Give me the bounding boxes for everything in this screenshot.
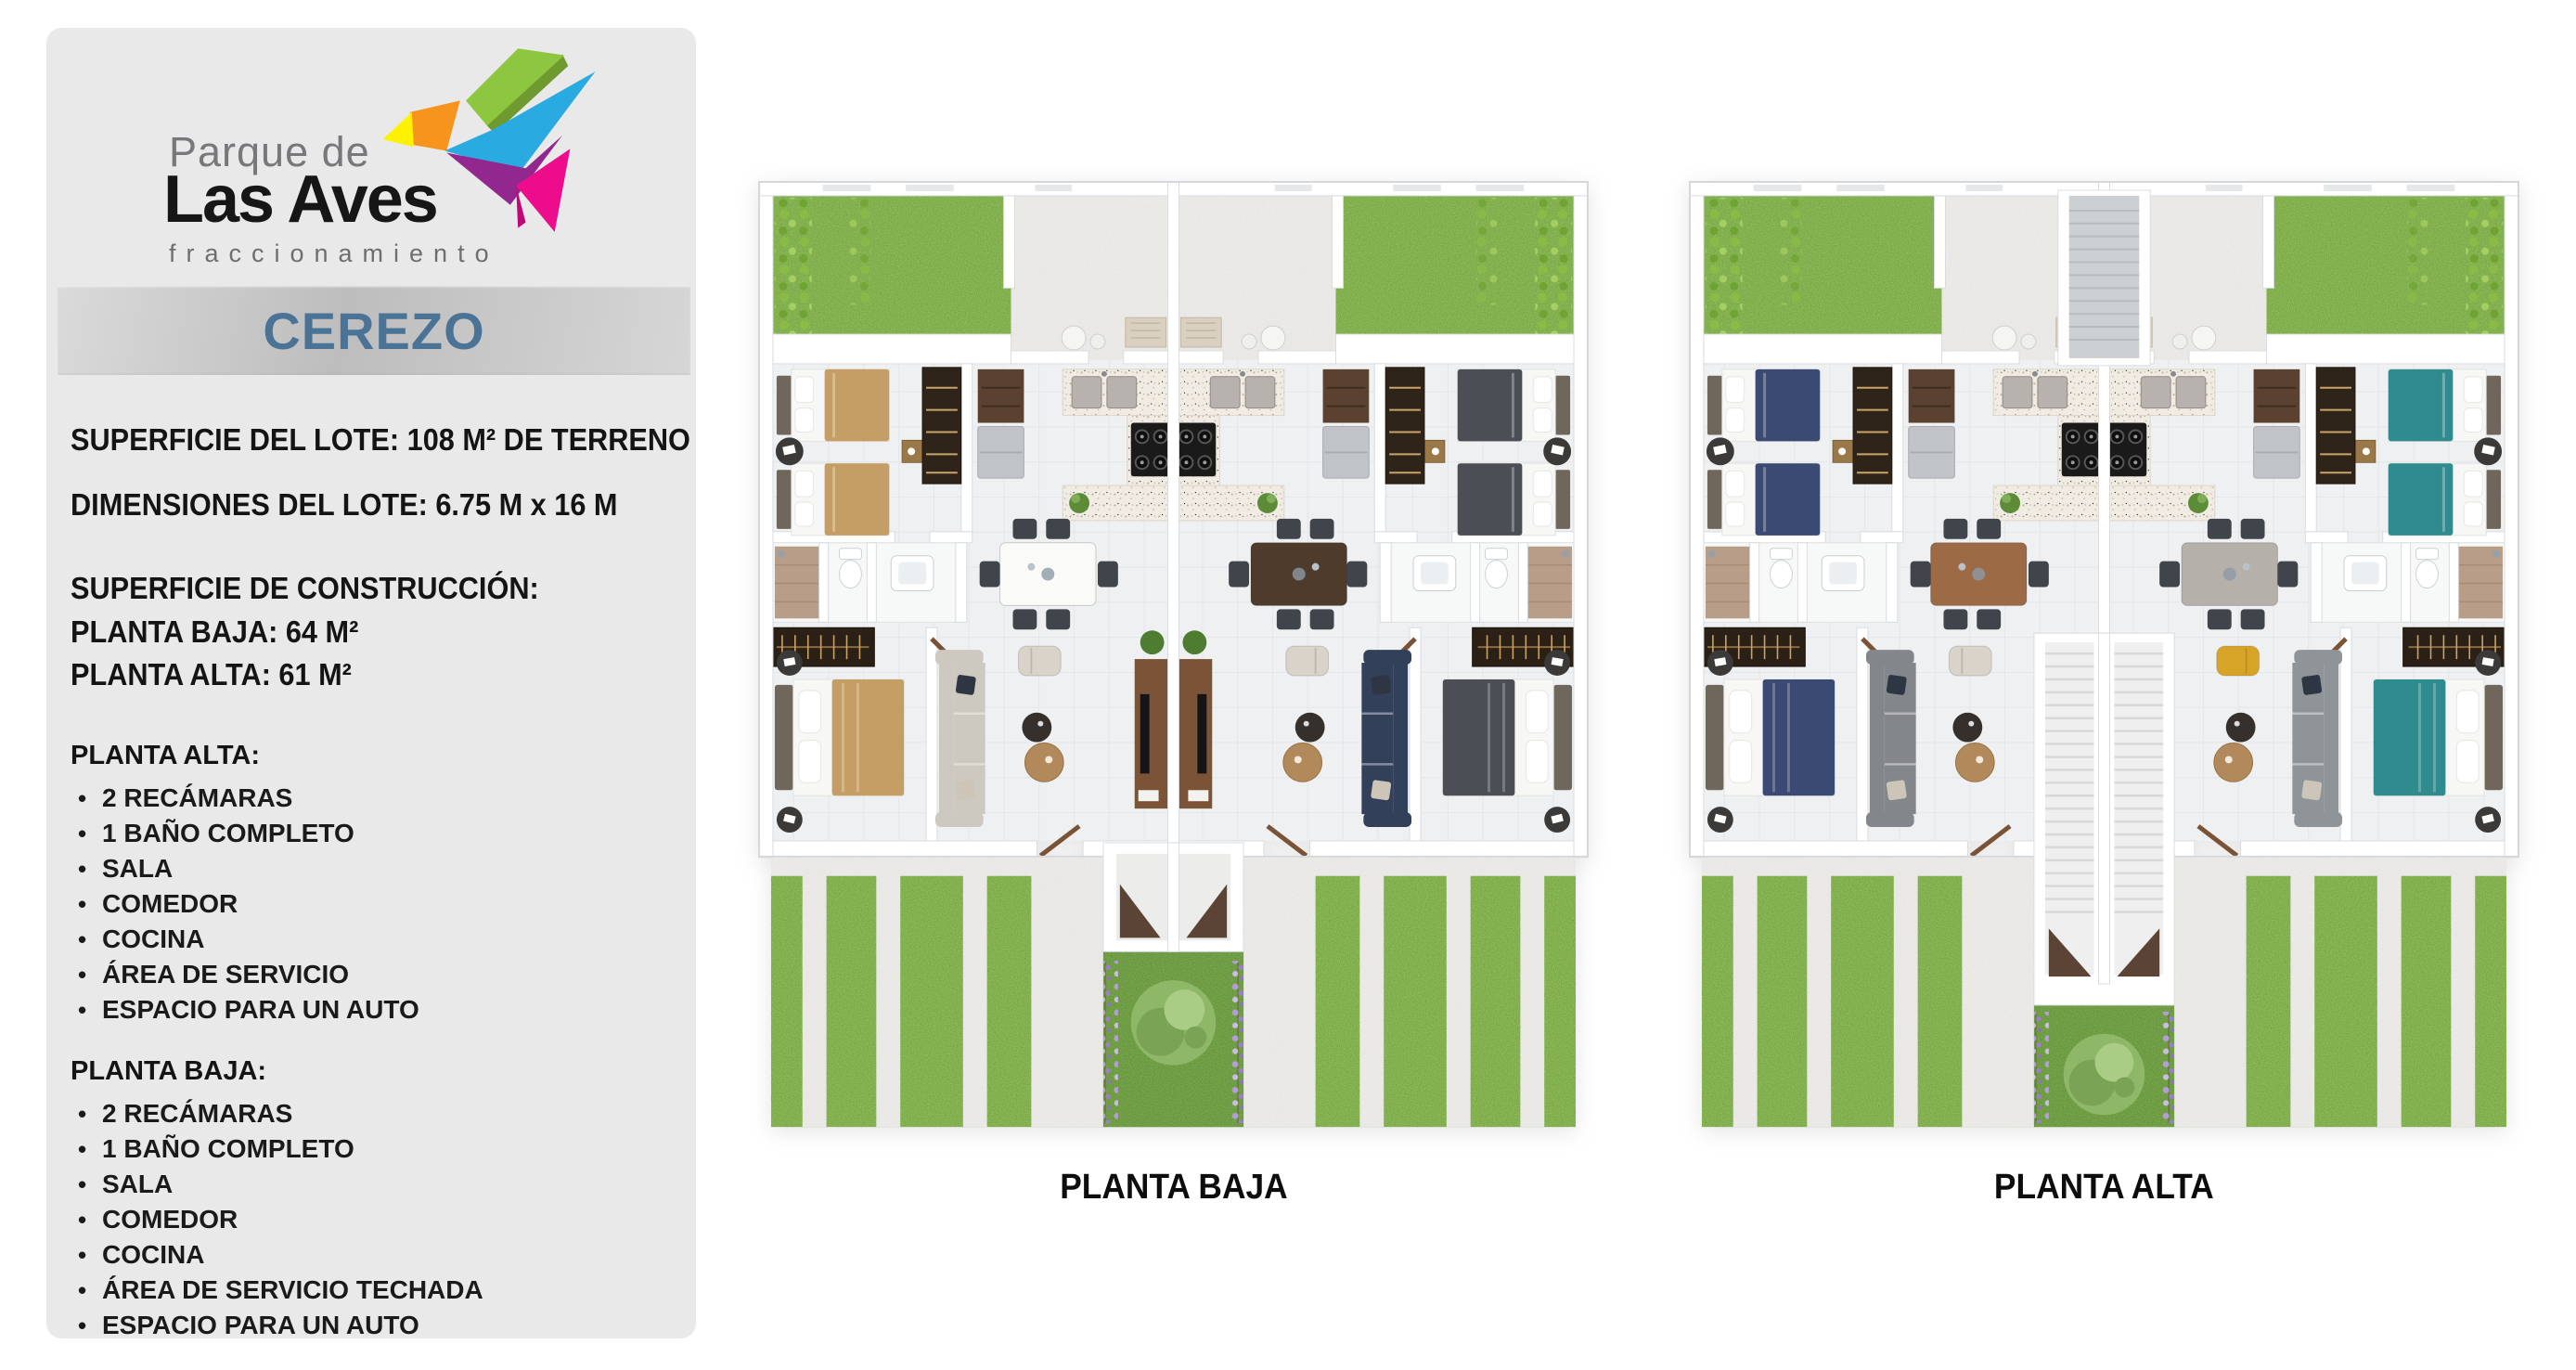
list-item: COCINA — [71, 1237, 664, 1273]
list-item: ESPACIO PARA UN AUTO — [71, 1308, 664, 1343]
list-item: COCINA — [71, 922, 664, 957]
spec-construction-title: SUPERFICIE DE CONSTRUCCIÓN: — [71, 571, 683, 606]
logo-line-2: Las Aves — [163, 162, 437, 238]
list-item: ÁREA DE SERVICIO TECHADA — [71, 1273, 664, 1308]
spec-lot-surface: SUPERFICIE DEL LOTE: 108 M² DE TERRENO — [71, 422, 683, 458]
features-ground-title: PLANTA BAJA: — [71, 1056, 664, 1087]
list-item: ÁREA DE SERVICIO — [71, 957, 664, 992]
model-name: CEREZO — [263, 301, 484, 361]
logo: Parque de Las Aves fraccionamiento — [154, 54, 599, 281]
spec-lot-dimensions: DIMENSIONES DEL LOTE: 6.75 M x 16 M — [71, 487, 683, 523]
logo-line-3: fraccionamiento — [169, 239, 499, 268]
plan-upper-label: PLANTA ALTA — [1689, 1168, 2519, 1208]
list-item: 1 BAÑO COMPLETO — [71, 1131, 664, 1167]
list-item: 1 BAÑO COMPLETO — [71, 816, 664, 851]
list-item: ESPACIO PARA UN AUTO — [71, 992, 664, 1027]
list-item: 2 RECÁMARAS — [71, 1096, 664, 1131]
features-upper-title: PLANTA ALTA: — [71, 741, 664, 771]
spec-construction-upper: PLANTA ALTA: 61 M² — [71, 657, 683, 692]
floorplan-ground — [758, 181, 1589, 1159]
brochure-page: { "logo": { "line1": "Parque de", "line2… — [0, 0, 2576, 1370]
features-upper-list: 2 RECÁMARAS 1 BAÑO COMPLETO SALA COMEDOR… — [71, 781, 664, 1027]
plan-ground-label: PLANTA BAJA — [758, 1168, 1589, 1208]
features-ground-floor: PLANTA BAJA: 2 RECÁMARAS 1 BAÑO COMPLETO… — [71, 1056, 664, 1343]
floorplan-upper — [1689, 181, 2519, 1159]
list-item: COMEDOR — [71, 1202, 664, 1237]
features-upper-floor: PLANTA ALTA: 2 RECÁMARAS 1 BAÑO COMPLETO… — [71, 741, 664, 1027]
list-item: 2 RECÁMARAS — [71, 781, 664, 816]
list-item: SALA — [71, 1167, 664, 1202]
list-item: SALA — [71, 851, 664, 886]
info-panel: Parque de Las Aves fraccionamiento CEREZ… — [46, 28, 696, 1338]
features-ground-list: 2 RECÁMARAS 1 BAÑO COMPLETO SALA COMEDOR… — [71, 1096, 664, 1343]
spec-construction-ground: PLANTA BAJA: 64 M² — [71, 614, 683, 650]
model-name-banner: CEREZO — [58, 286, 690, 375]
list-item: COMEDOR — [71, 886, 664, 922]
